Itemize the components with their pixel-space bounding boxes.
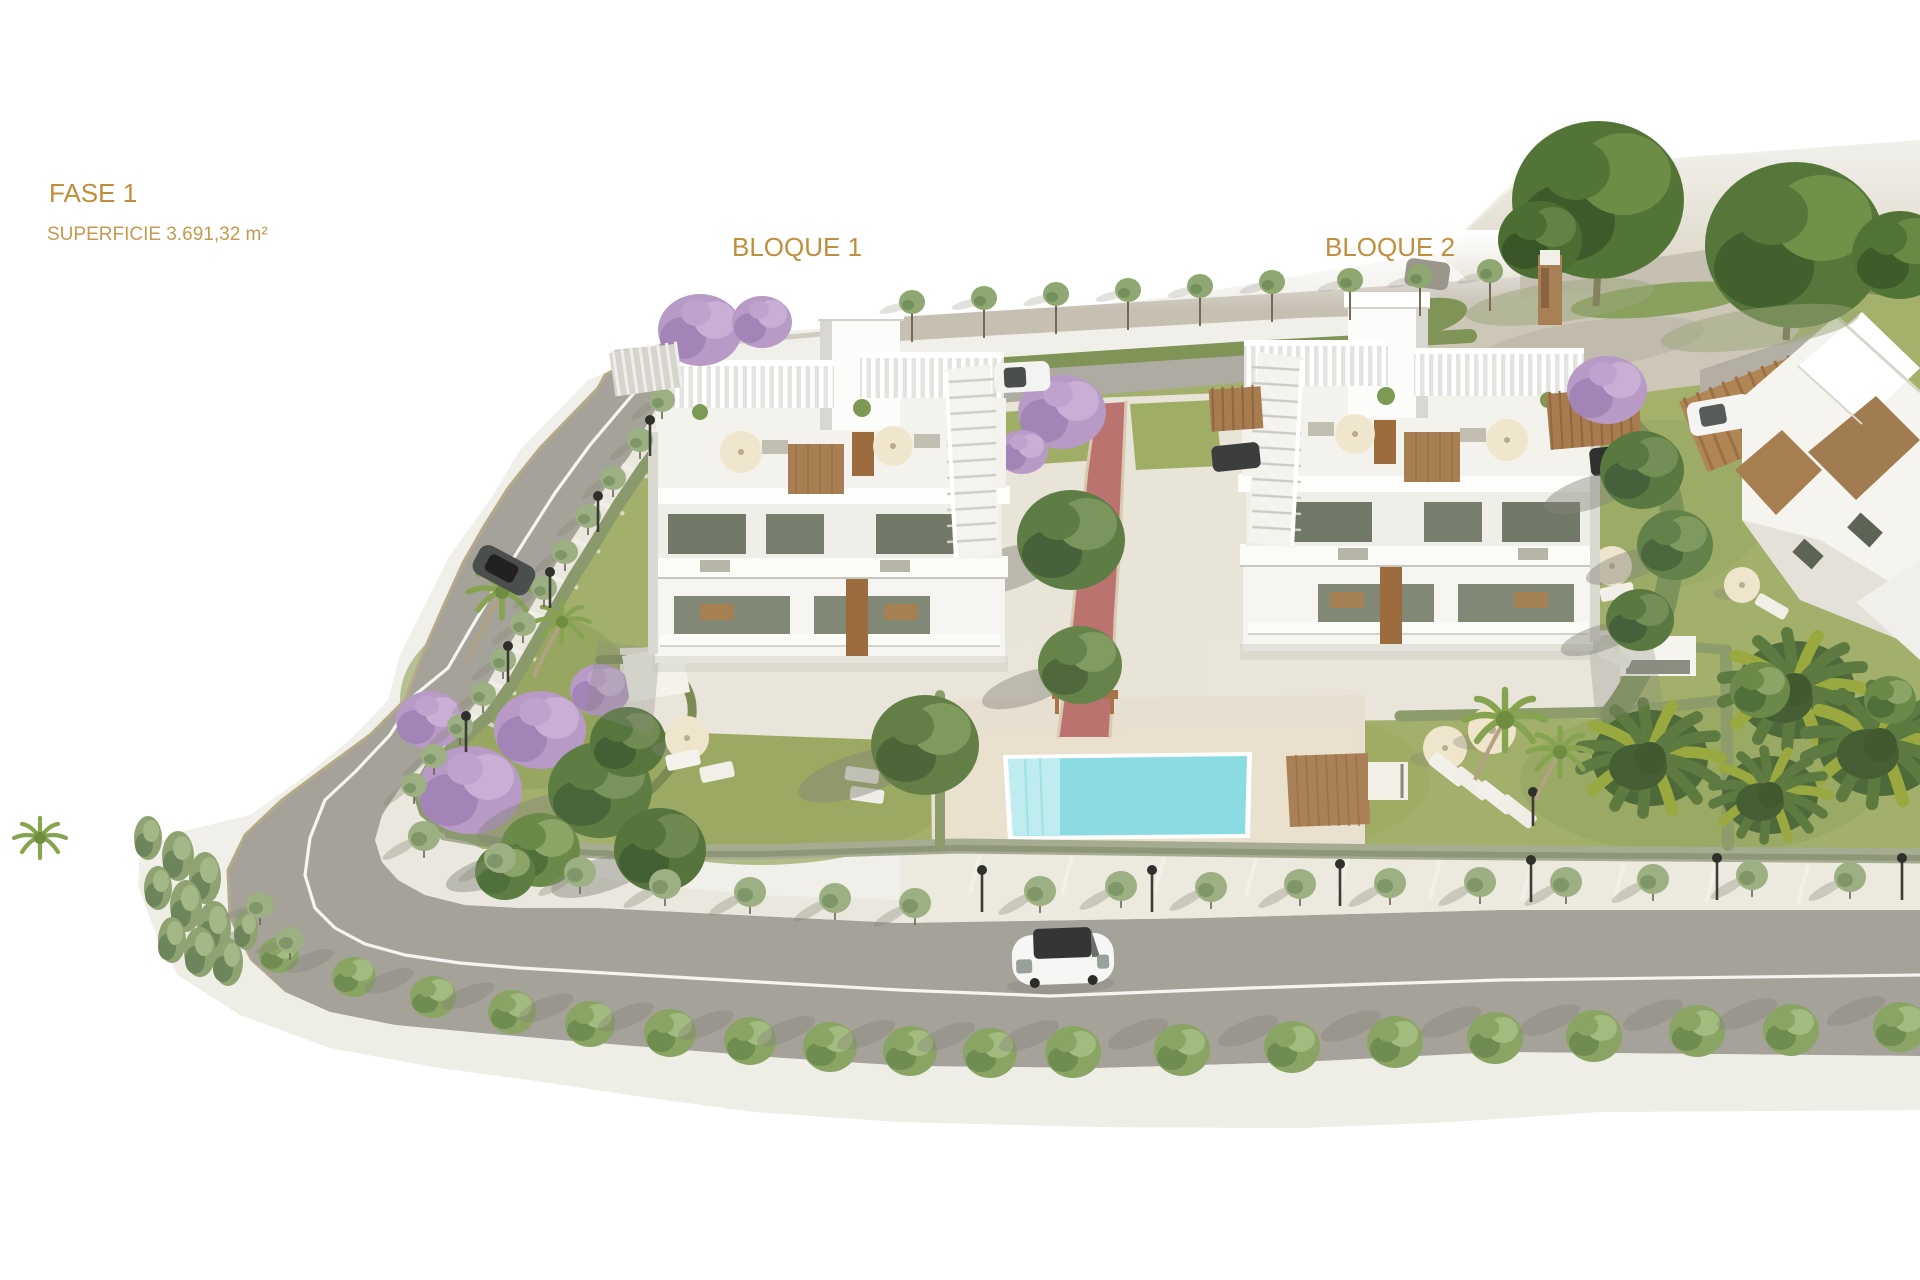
svg-text:BLOQUE 1: BLOQUE 1 (732, 232, 862, 262)
svg-text:SUPERFICIE 3.691,32 m²: SUPERFICIE 3.691,32 m² (47, 224, 268, 245)
svg-text:FASE 1: FASE 1 (49, 178, 137, 208)
svg-text:BLOQUE 2: BLOQUE 2 (1325, 232, 1455, 262)
